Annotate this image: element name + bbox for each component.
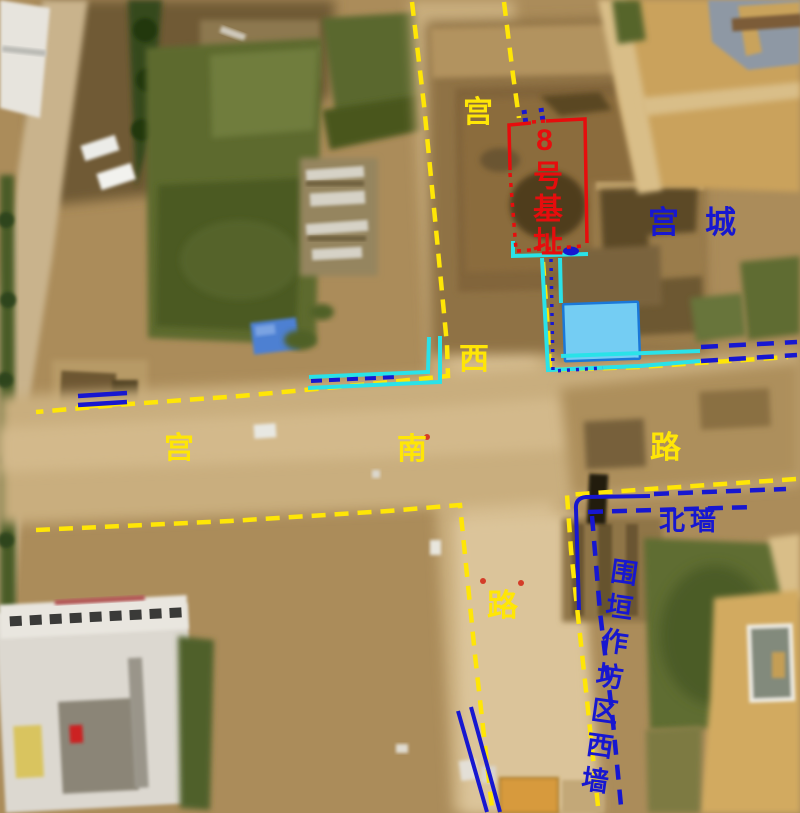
wall-line-bottom-2 [471,707,500,812]
label-road-west-xi: 西 [459,345,489,375]
well-feature-mark [563,247,579,256]
label-road-west-gong: 宫 [463,98,493,128]
label-foundation-site-8: 8号基址 [529,124,559,259]
label-north-wall: 北墙 [659,508,721,534]
road-boundary-lines [36,2,796,808]
water-channel-lines [308,241,700,388]
west-wall-mark-2 [78,402,127,405]
road-south-edge-west [36,505,492,808]
label-palace-city: 宫城 [648,207,762,238]
foundation-outline-topmid-dotted [532,121,545,122]
road-west-edge-north [36,2,448,412]
label-road-south-nan: 南 [397,435,427,465]
aerial-photo-figure: 宫 西 路 宫 南 路 宫城 北墙 围垣作坊区西墙 8号基址 [0,0,800,813]
annotation-overlay [0,0,800,813]
west-wall-mark-1 [78,393,127,396]
road-east-edge-top [504,2,519,118]
survey-flag-3 [518,580,524,586]
foundation-top-tick-2 [541,108,543,121]
wall-dashed-east-1 [701,342,797,347]
channel-to-pond-east [560,258,561,303]
label-road-south-lu: 路 [650,432,681,463]
survey-flag-2 [480,578,486,584]
label-road-south-gong: 宫 [164,434,194,464]
foundation-outline-left-dotted [510,173,516,250]
channel-elbow-inner [309,337,429,377]
label-road-west-lu: 路 [487,590,518,621]
north-wall-dashed-1 [654,489,786,494]
